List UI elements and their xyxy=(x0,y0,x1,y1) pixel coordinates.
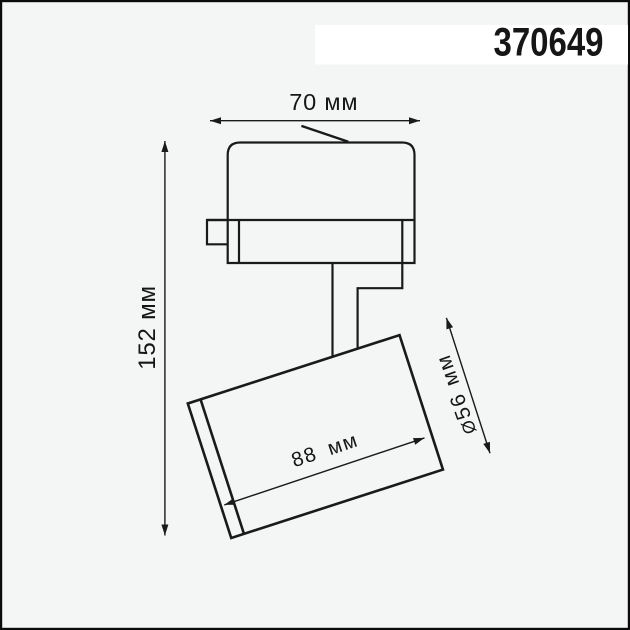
svg-text:370649: 370649 xyxy=(494,21,604,65)
svg-text:70 мм: 70 мм xyxy=(289,89,358,115)
svg-text:152 мм: 152 мм xyxy=(134,285,161,370)
